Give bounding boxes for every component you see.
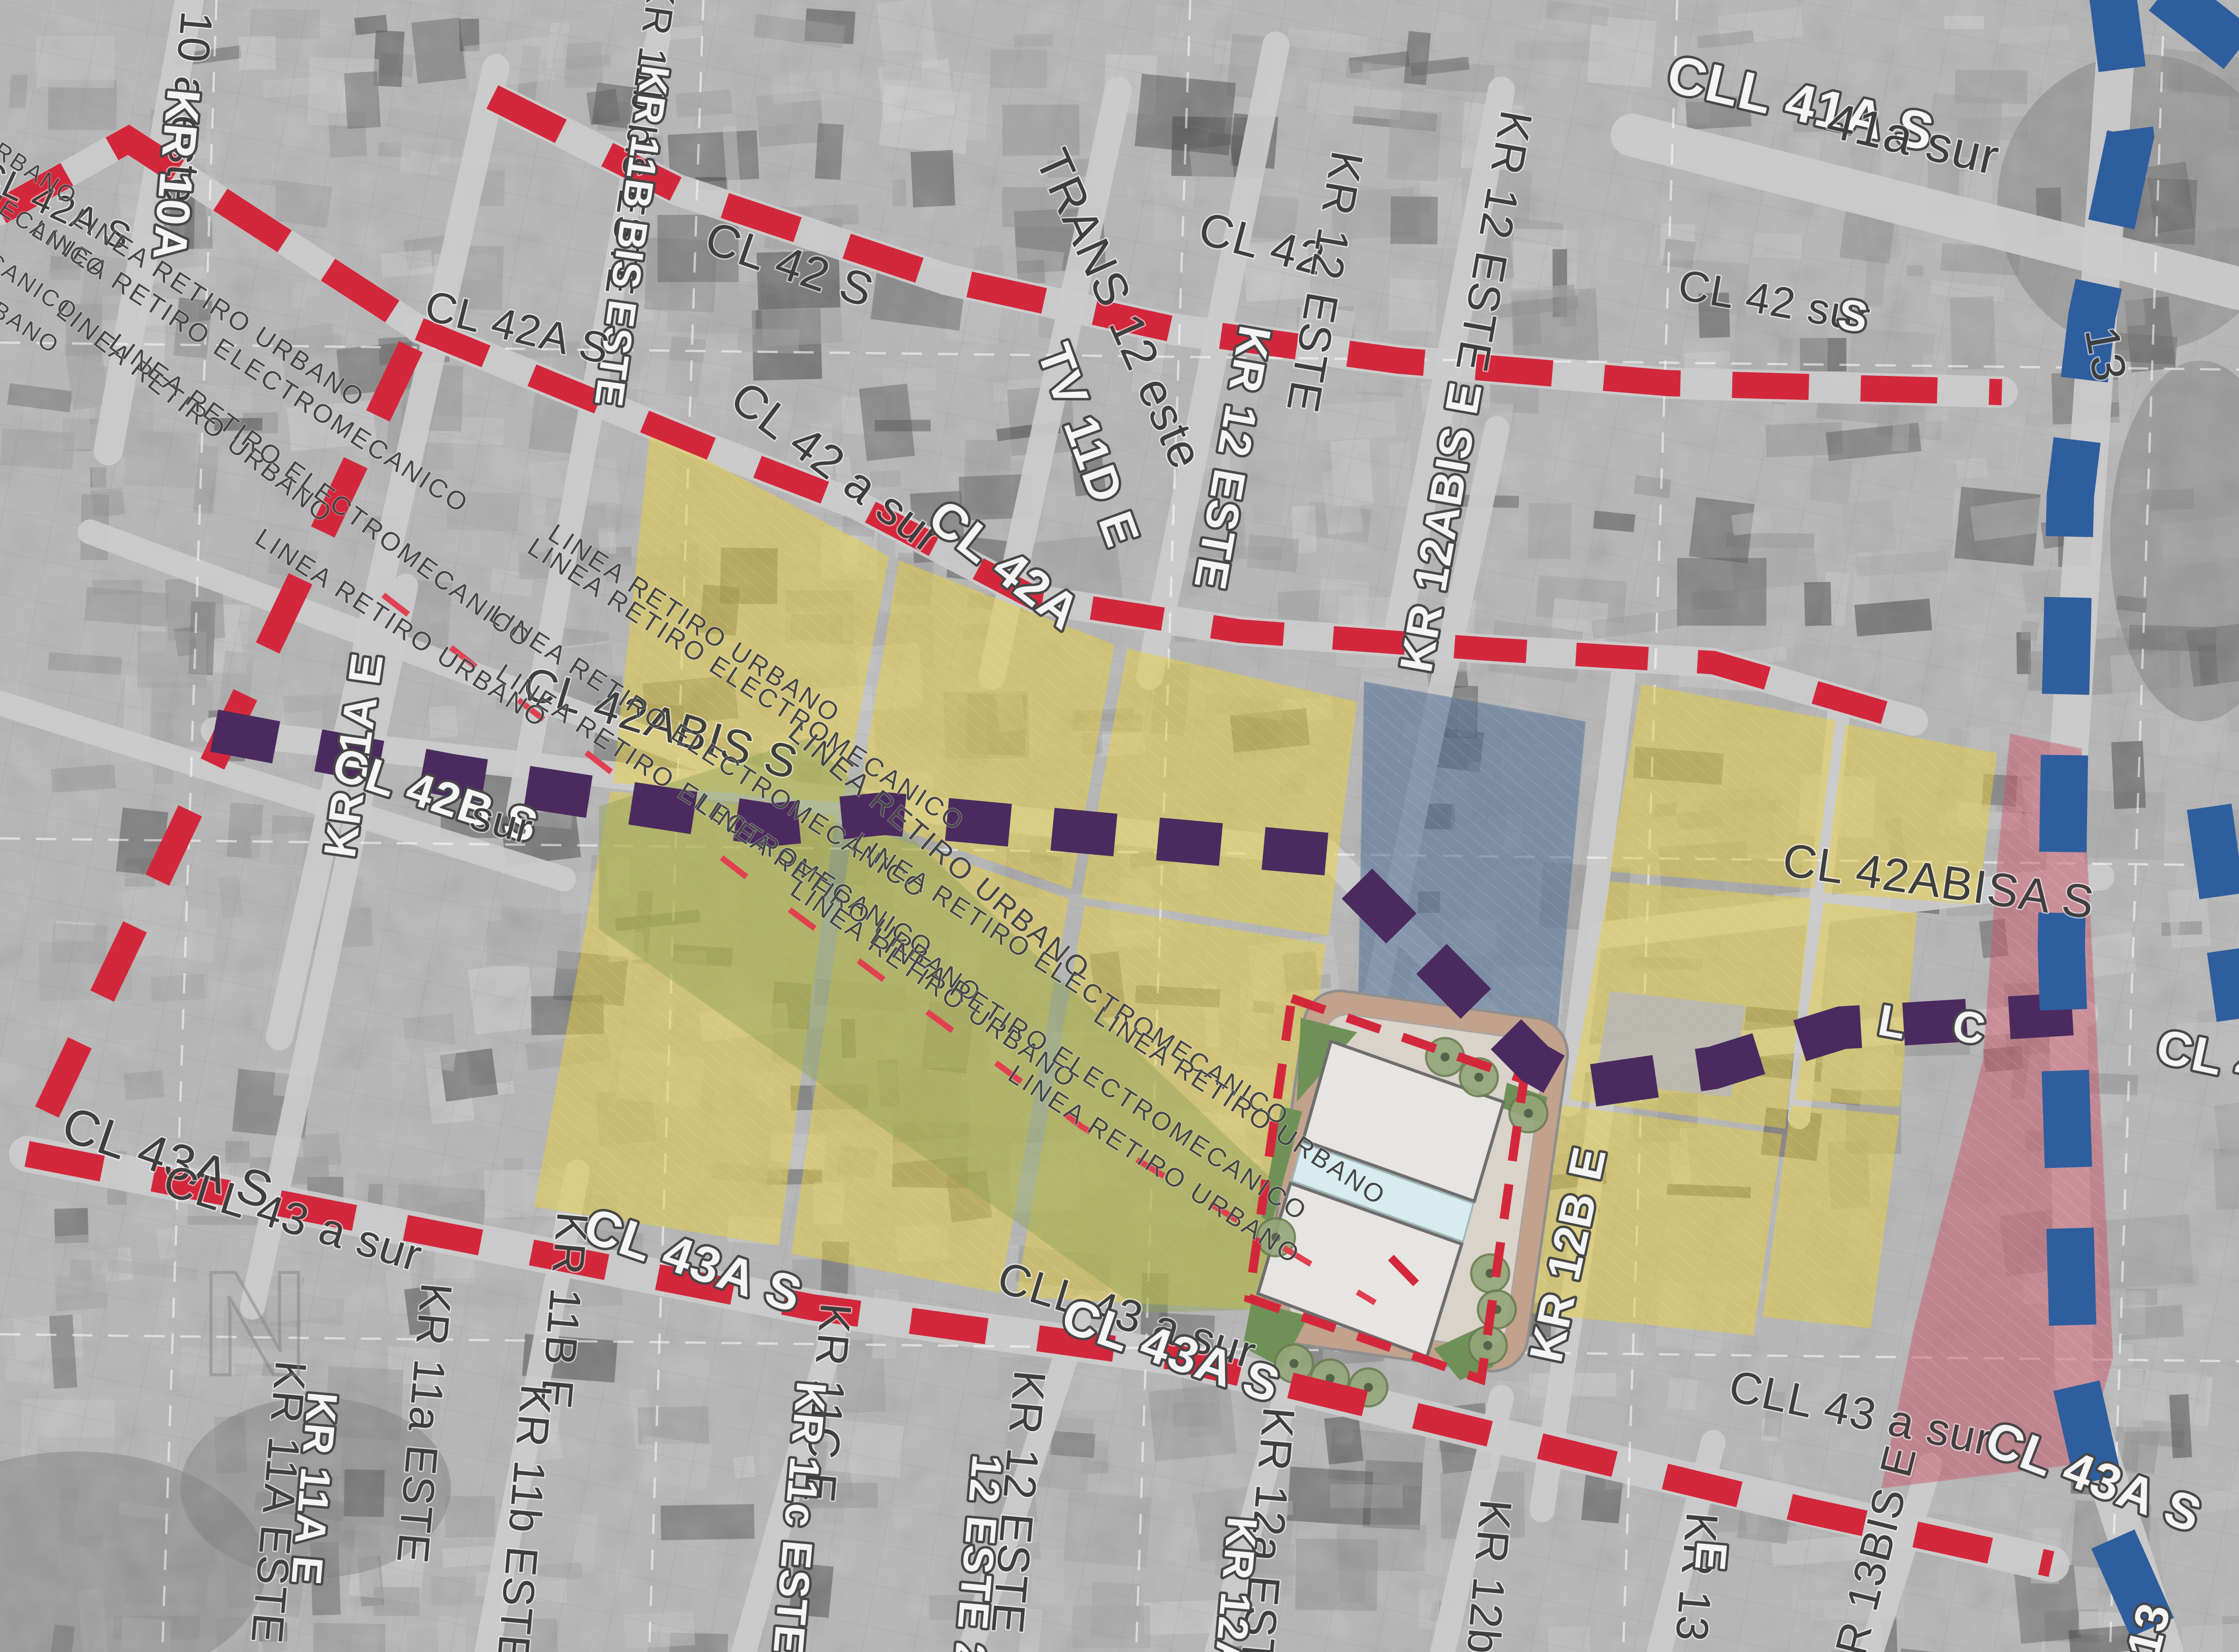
site-tree-center bbox=[1483, 1341, 1492, 1350]
urban-plan-map: CLL 41A S41a surCL 42 SCL 42CL 42 surSKR… bbox=[0, 0, 2239, 1652]
site-tree-center bbox=[1474, 1073, 1483, 1082]
street-label: 13 bbox=[2075, 322, 2137, 386]
street-label: E bbox=[1685, 1539, 1736, 1573]
site-tree-center bbox=[1441, 1053, 1450, 1062]
site-tree-center bbox=[1524, 1109, 1533, 1118]
map-stage: CLL 41A S41a surCL 42 SCL 42CL 42 surSKR… bbox=[0, 0, 2239, 1652]
north-watermark: N bbox=[201, 1240, 308, 1406]
site-tree-center bbox=[1289, 1359, 1298, 1368]
